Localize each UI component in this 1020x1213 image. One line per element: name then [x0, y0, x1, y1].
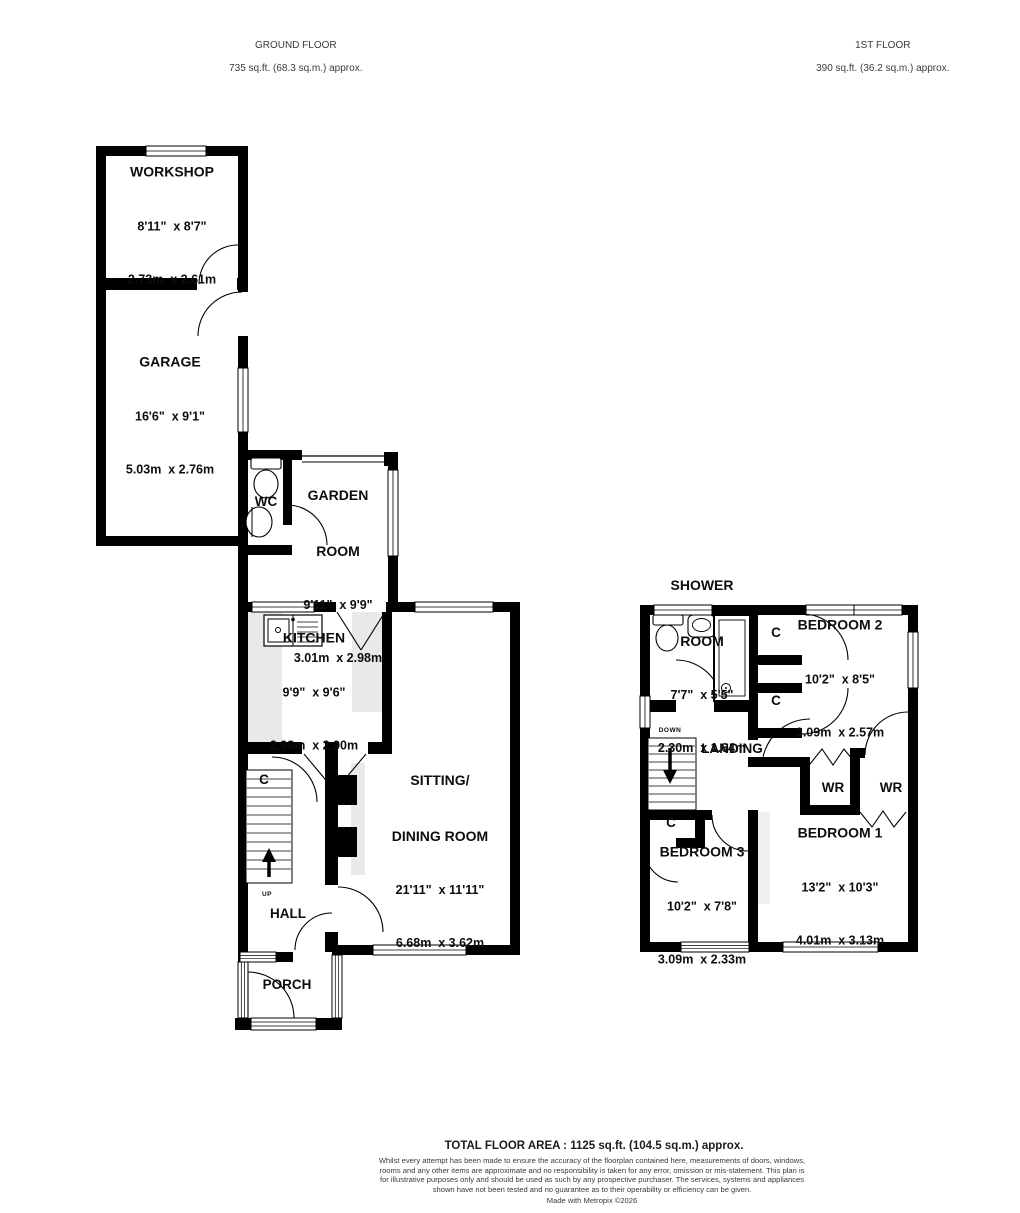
ground-floor-title: GROUND FLOOR [255, 40, 337, 51]
basin-icon [246, 507, 272, 537]
room-label-bedroom2: BEDROOM 2 10'2" x 8'5" 3.09m x 2.57m [796, 578, 884, 759]
room-label-sitting-dining: SITTING/ DINING ROOM 21'11" x 11'11" 6.6… [392, 734, 488, 970]
disclaimer-text: Whilst every attempt has been made to en… [377, 1156, 807, 1195]
room-label-landing: LANDING [701, 741, 763, 757]
credit-text: Made with Metropix ©2026 [547, 1196, 637, 1205]
stairs-ground [246, 770, 292, 883]
label-cupboard-hall: C [259, 772, 269, 788]
label-cupboard-mid: C [771, 693, 781, 709]
ground-floor-header: GROUND FLOOR 735 sq.ft. (68.3 sq.m.) app… [224, 28, 363, 74]
label-stairs-down: DOWN [659, 727, 682, 735]
first-floor-area: 390 sq.ft. (36.2 sq.m.) approx. [816, 63, 949, 74]
first-floor-header: 1ST FLOOR 390 sq.ft. (36.2 sq.m.) approx… [811, 28, 950, 74]
toilet-icon [251, 458, 281, 498]
floorplan-page: GROUND FLOOR 735 sq.ft. (68.3 sq.m.) app… [0, 0, 1020, 1213]
label-stairs-up: UP [262, 891, 272, 899]
room-label-shower-room: SHOWER ROOM 7'7" x 5'5" 2.30m x 1.64m [658, 539, 746, 775]
room-label-workshop: WORKSHOP 8'11" x 8'7" 2.73m x 2.61m [128, 125, 216, 306]
room-label-kitchen: KITCHEN 9'9" x 9'6" 2.98m x 2.90m [270, 591, 358, 772]
room-label-bedroom1: BEDROOM 1 13'2" x 10'3" 4.01m x 3.13m [796, 786, 884, 967]
room-label-wc: WC [255, 494, 278, 510]
first-floor-title: 1ST FLOOR [855, 40, 910, 51]
room-label-porch: PORCH [263, 977, 312, 993]
label-cupboard-top: C [771, 625, 781, 641]
room-label-hall: HALL [270, 906, 306, 922]
total-floor-area: TOTAL FLOOR AREA : 1125 sq.ft. (104.5 sq… [445, 1140, 744, 1152]
room-label-bedroom3: BEDROOM 3 10'2" x 7'8" 3.09m x 2.33m [658, 805, 746, 986]
ground-floor-area: 735 sq.ft. (68.3 sq.m.) approx. [229, 63, 362, 74]
room-label-garage: GARAGE 16'6" x 9'1" 5.03m x 2.76m [126, 315, 214, 496]
